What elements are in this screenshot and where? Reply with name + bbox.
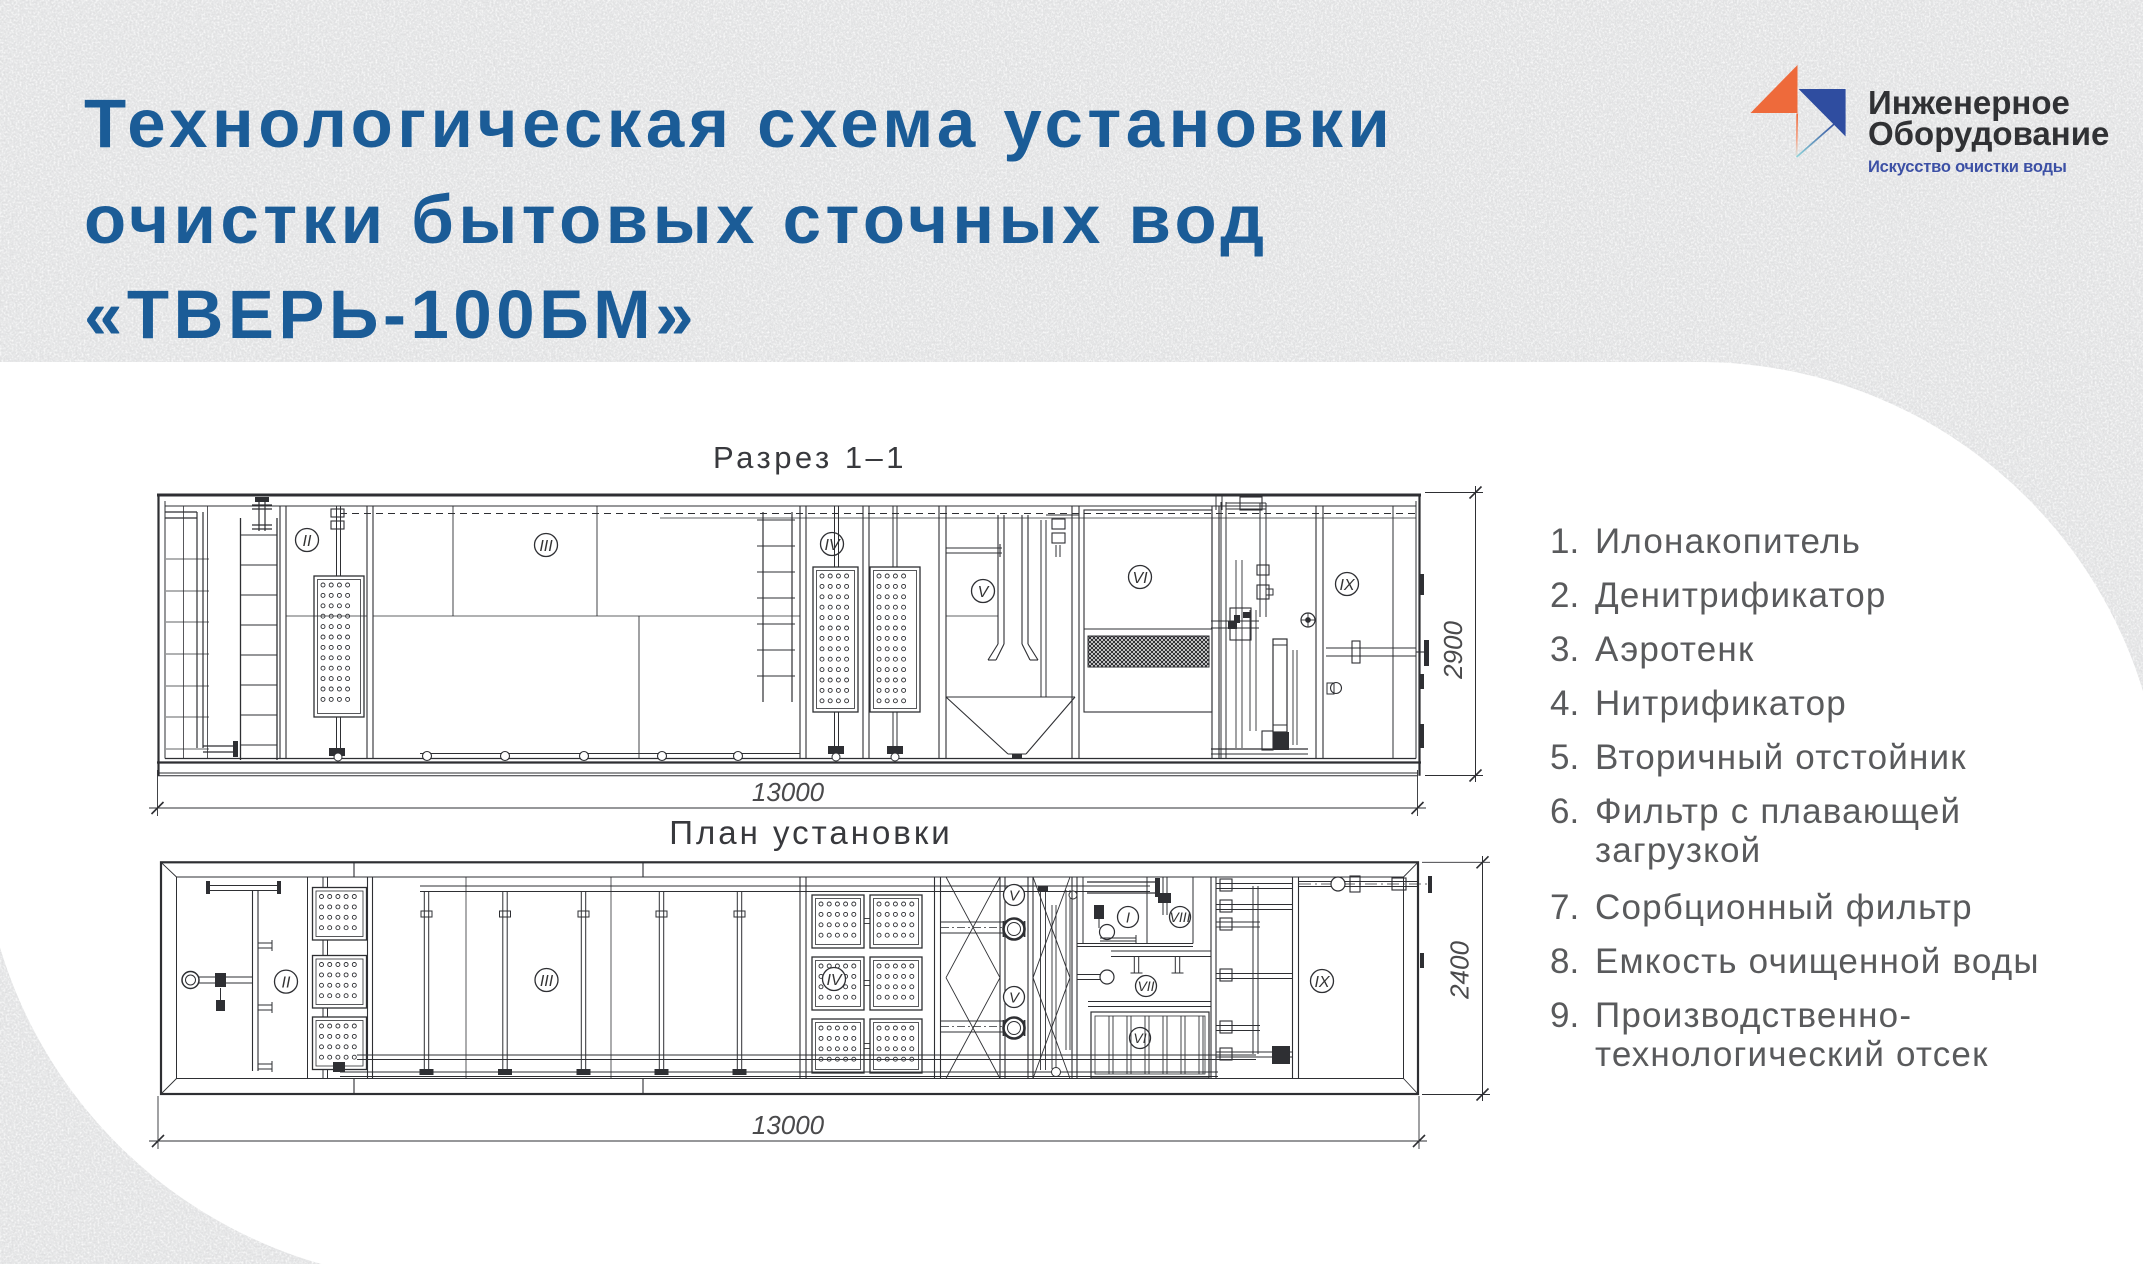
svg-text:VI: VI	[1132, 570, 1148, 587]
svg-text:II: II	[282, 974, 291, 991]
svg-text:VII: VII	[1137, 978, 1154, 994]
svg-text:План установки: План установки	[669, 814, 952, 851]
svg-text:VIII: VIII	[1169, 909, 1190, 925]
svg-text:II: II	[303, 533, 312, 550]
svg-text:IX: IX	[1314, 974, 1330, 991]
svg-text:III: III	[539, 538, 553, 555]
svg-text:13000: 13000	[752, 777, 825, 807]
svg-text:I: I	[1126, 909, 1130, 926]
svg-text:2400: 2400	[1445, 941, 1475, 1000]
svg-text:V: V	[978, 584, 990, 601]
svg-text:IX: IX	[1339, 577, 1355, 594]
svg-text:2900: 2900	[1438, 621, 1468, 680]
svg-text:III: III	[540, 973, 554, 990]
svg-text:13000: 13000	[752, 1110, 825, 1140]
svg-text:Разрез 1–1: Разрез 1–1	[713, 440, 907, 475]
svg-text:IV: IV	[826, 972, 842, 989]
